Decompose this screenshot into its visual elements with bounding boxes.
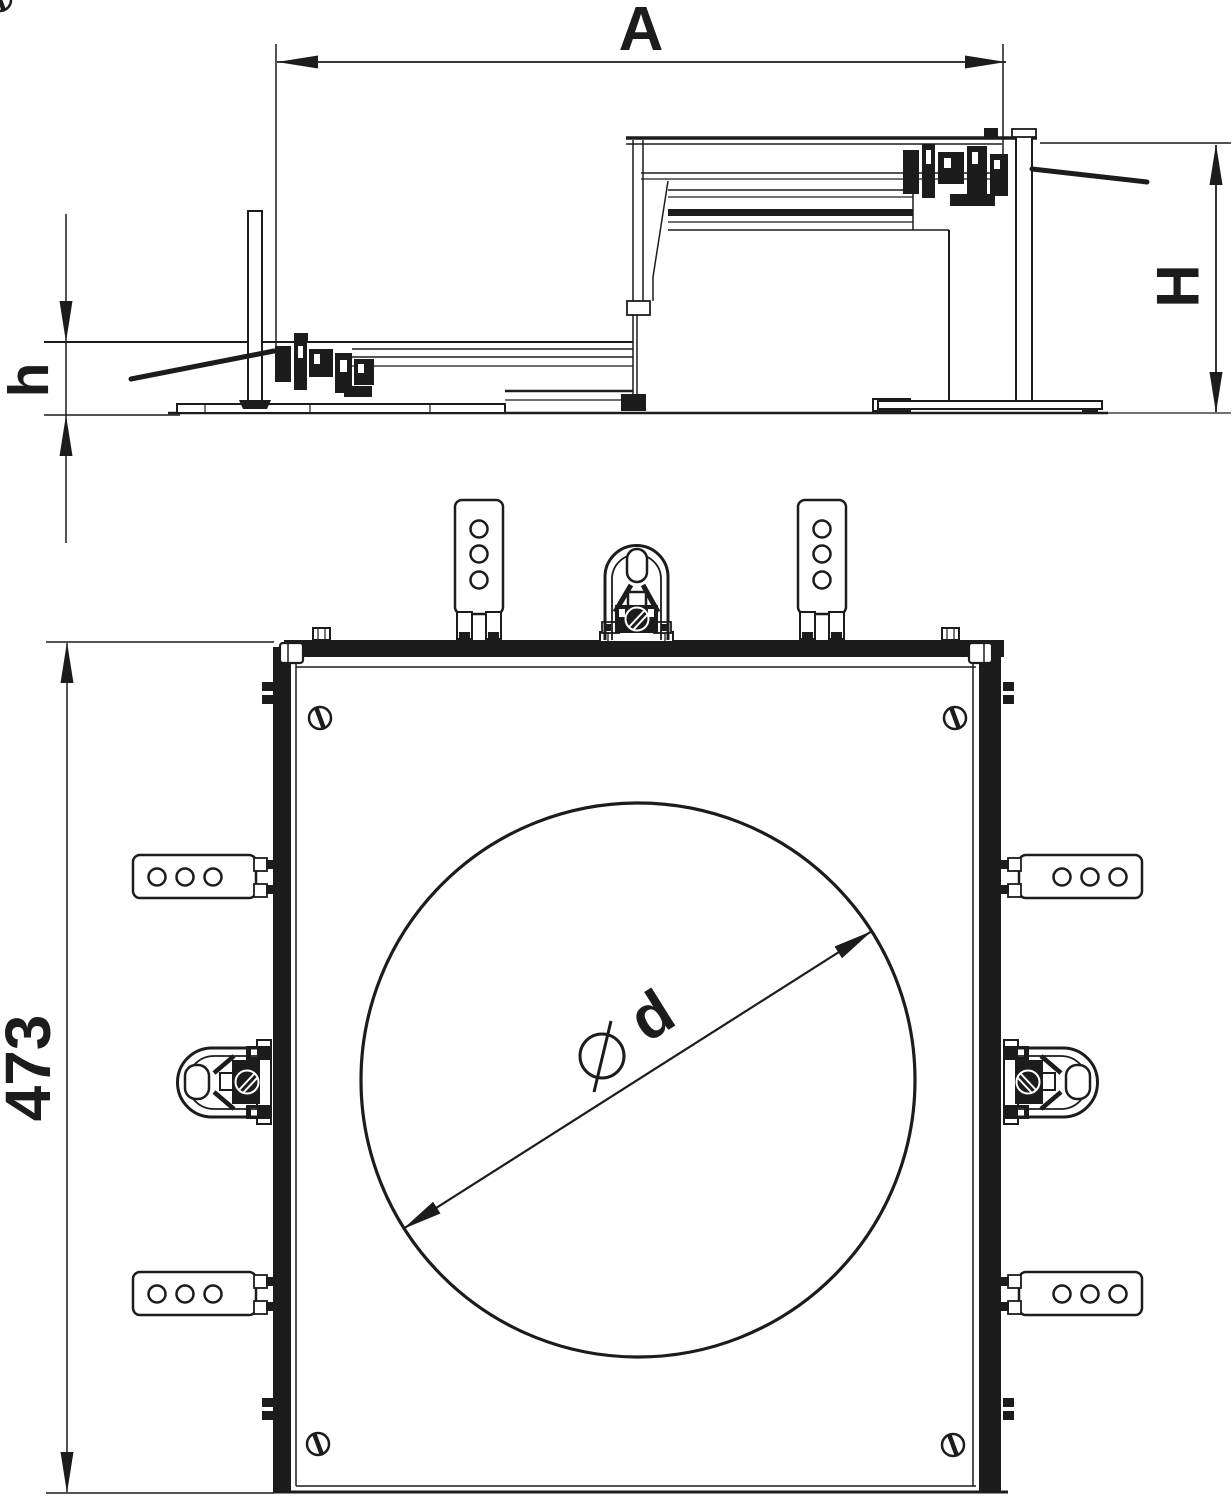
mounting-bracket-top-right [798,500,846,639]
mounting-bracket-side-upper-left [133,855,274,898]
arrowhead-lower-left [403,1202,441,1229]
frame [262,628,1014,1493]
dimension-diameter-d: d [403,931,872,1229]
arrowhead-down [60,301,73,342]
label-diameter-d: d [618,977,687,1056]
side-clamp-right [1004,1040,1098,1124]
label-frame-473: 473 [0,1015,64,1122]
arrowhead-upper-right [835,931,873,958]
left-post-foot [239,400,271,409]
mounting-bracket-side-lower-left [133,1272,274,1315]
frame-bar-right [979,647,1001,1493]
arrowhead-up [60,415,73,456]
release-lever-right [1032,169,1147,182]
panel-screw-bottom-left [307,1433,329,1455]
outer-post-cap [1012,129,1036,137]
panel-screw-top-right [944,707,966,729]
base-plate-left [177,404,505,413]
diameter-symbol [580,1021,624,1092]
lid-layer-stack [668,190,949,230]
arrowhead-down [61,1452,74,1493]
arrowhead-down [1210,372,1223,413]
panel-screw-bottom-right [942,1434,964,1456]
frame-bar-screw-left [313,628,330,640]
tray-layers [352,349,633,400]
arrowhead-right [965,56,1006,69]
side-view-raised-assembly [621,128,1147,413]
technical-drawing-page: A h H [0,0,1232,1500]
dimension-height-max-H: H [1040,143,1231,413]
base-plate-right [878,401,1102,409]
side-view: A h H [0,0,1231,543]
corner-hook-right [969,643,992,663]
label-width-A: A [619,0,664,64]
arrowhead-up [1210,144,1223,185]
arrowhead-up [61,642,74,683]
mounting-bracket-top [455,500,503,639]
arrowhead-left [277,56,318,69]
panel-screw [0,0,11,11]
floor-box-technical-drawing: A h H [0,0,1232,1500]
side-clamp-left [178,1040,272,1124]
frame-bar-screw-right [942,628,959,640]
frame-bar-left [273,647,291,1493]
lug-slot [627,549,647,582]
outer-post-right [1016,136,1032,404]
lifting-lug-top [600,546,673,643]
panel-screw-top-left [309,707,331,729]
mounting-bracket-side-lower-right [1001,1272,1142,1315]
clamp-slot [185,1065,209,1099]
box-left-wall [621,140,668,411]
left-post [248,211,262,401]
dimension-height-min-h: h [0,214,180,543]
frame-edge-connector-nubs [262,682,1014,1420]
label-height-max-H: H [1145,264,1212,307]
label-height-min-h: h [0,363,61,398]
corner-hook-left [280,643,303,663]
mounting-bracket-side-upper-right [1001,855,1142,898]
plan-view: 473 [0,0,1142,1493]
